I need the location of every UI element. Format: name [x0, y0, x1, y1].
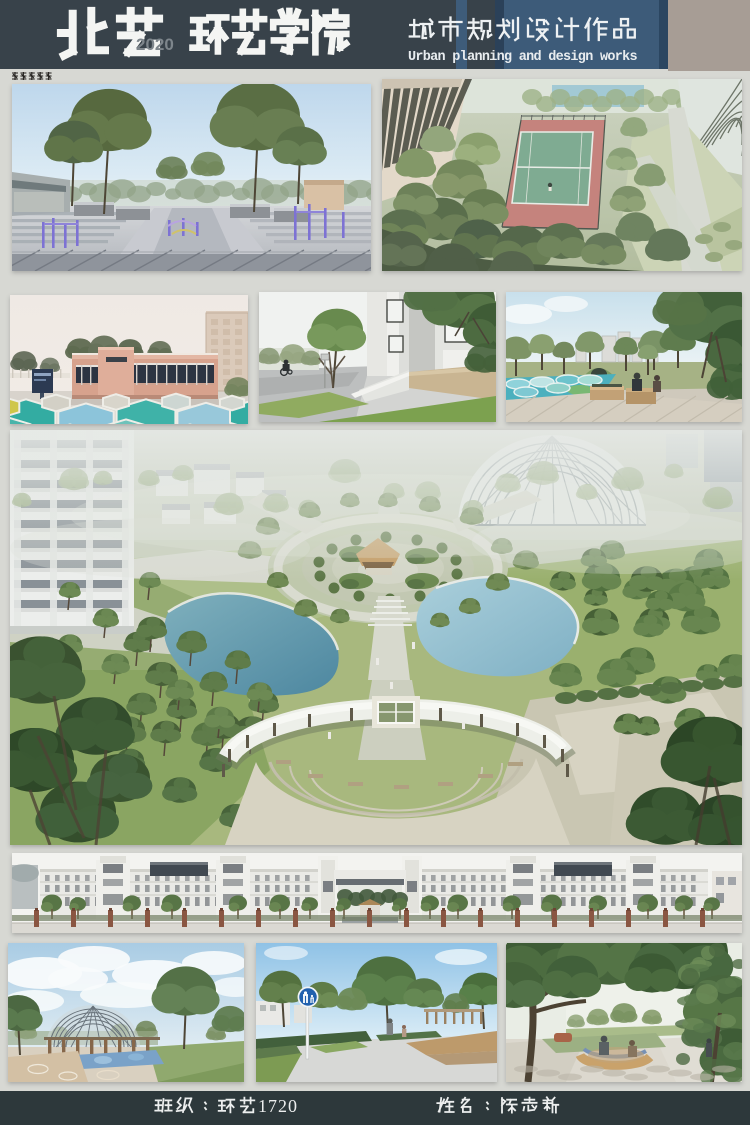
svg-text:2020: 2020: [136, 35, 174, 54]
svg-text:Urban planning and design work: Urban planning and design works: [408, 50, 638, 65]
svg-text:1720: 1720: [258, 1096, 298, 1116]
